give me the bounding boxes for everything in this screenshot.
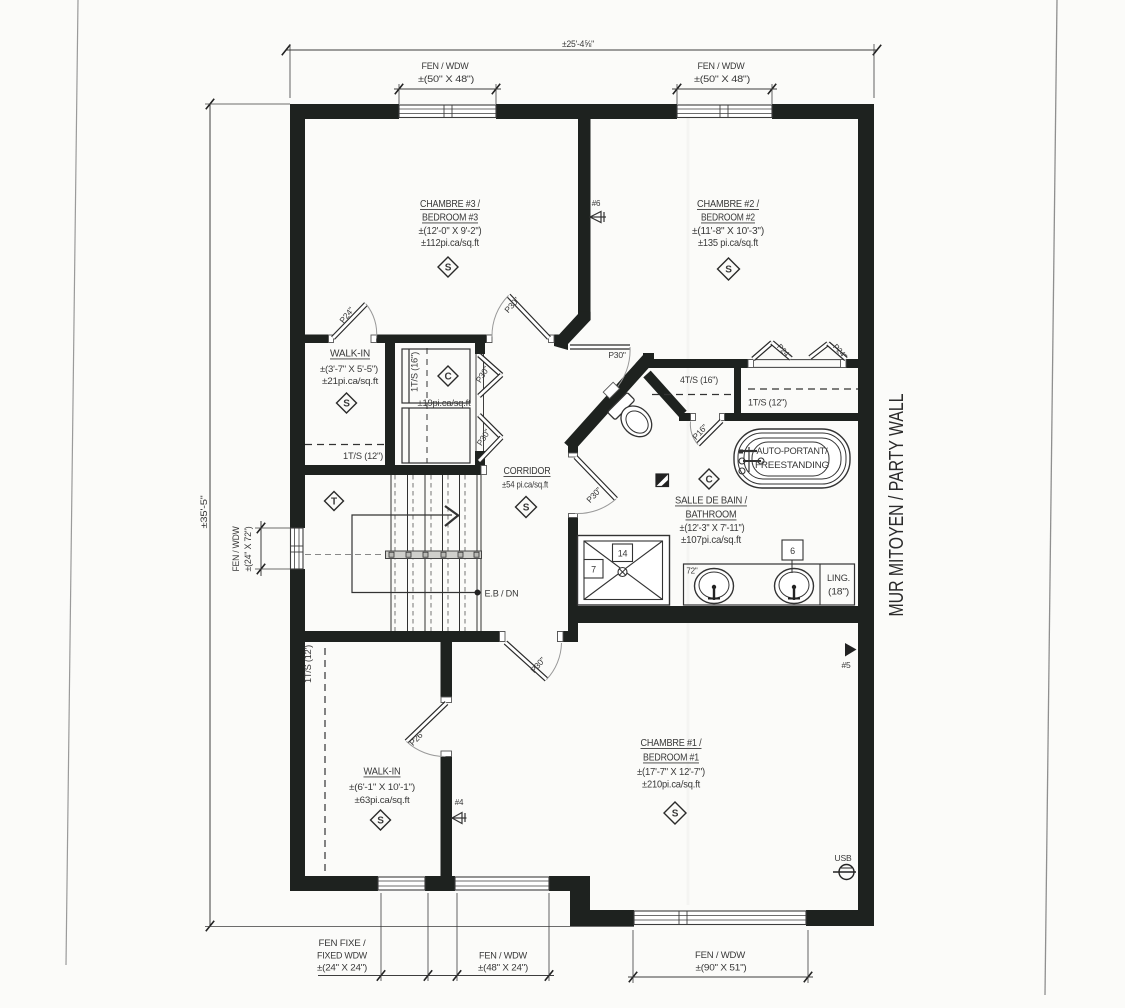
svg-text:#5: #5	[841, 660, 851, 670]
svg-text:±112pi.ca/sq.ft: ±112pi.ca/sq.ft	[421, 237, 479, 249]
svg-text:S: S	[672, 809, 679, 820]
svg-text:±(90" X 51"): ±(90" X 51")	[696, 963, 747, 973]
svg-text:±(17'-7" X 12'-7"): ±(17'-7" X 12'-7")	[637, 766, 705, 778]
svg-text:LING.: LING.	[827, 573, 850, 583]
svg-text:CHAMBRE #2 /: CHAMBRE #2 /	[697, 198, 759, 210]
svg-text:S: S	[523, 503, 530, 514]
svg-text:±(6'-1" X 10'-1"): ±(6'-1" X 10'-1")	[349, 782, 415, 793]
svg-text:±(24" X 72"): ±(24" X 72")	[243, 526, 253, 571]
svg-text:1T/S (12"): 1T/S (12")	[343, 451, 383, 462]
svg-text:14: 14	[618, 549, 628, 559]
svg-text:FEN / WDW: FEN / WDW	[231, 526, 241, 572]
svg-text:FIXED WDW: FIXED WDW	[317, 951, 368, 961]
svg-text:S: S	[377, 816, 384, 827]
svg-text:±35'-5": ±35'-5"	[199, 495, 209, 528]
svg-text:CHAMBRE #3 /: CHAMBRE #3 /	[420, 198, 480, 210]
svg-text:±(50" X 48"): ±(50" X 48")	[418, 74, 474, 84]
svg-text:6: 6	[790, 546, 795, 556]
svg-text:#4: #4	[455, 798, 464, 807]
svg-text:SALLE DE BAIN /: SALLE DE BAIN /	[675, 495, 747, 507]
svg-text:FEN FIXE /: FEN FIXE /	[319, 938, 367, 948]
svg-text:BATHROOM: BATHROOM	[686, 509, 737, 521]
svg-text:±25'-4⅝": ±25'-4⅝"	[562, 39, 594, 49]
svg-text:BEDROOM #1: BEDROOM #1	[643, 752, 699, 764]
svg-text:BEDROOM #3: BEDROOM #3	[422, 212, 478, 224]
svg-text:1T/S (12'): 1T/S (12')	[303, 645, 313, 683]
svg-text:FEN / WDW: FEN / WDW	[479, 951, 528, 961]
svg-text:BEDROOM #2: BEDROOM #2	[701, 212, 755, 224]
svg-text:±(24" X 24"): ±(24" X 24")	[317, 963, 367, 973]
svg-text:C: C	[705, 475, 712, 486]
svg-text:S: S	[445, 263, 452, 274]
svg-text:FREESTANDING: FREESTANDING	[755, 460, 829, 471]
svg-text:C: C	[444, 372, 451, 383]
svg-text:±(12'-3" X 7'-11"): ±(12'-3" X 7'-11")	[680, 522, 745, 534]
svg-text:P30": P30"	[608, 350, 626, 360]
svg-text:FEN / WDW: FEN / WDW	[695, 950, 746, 960]
svg-text:AUTO-PORTANT/: AUTO-PORTANT/	[757, 446, 829, 457]
svg-text:±54 pi.ca/sq.ft: ±54 pi.ca/sq.ft	[502, 480, 548, 491]
svg-text:±(48" X 24"): ±(48" X 24")	[478, 963, 528, 973]
svg-text:CORRIDOR: CORRIDOR	[504, 465, 552, 477]
svg-text:E.B / DN: E.B / DN	[485, 589, 519, 600]
svg-text:1T/S (16"): 1T/S (16")	[410, 352, 420, 392]
svg-text:±(12'-0" X 9'-2"): ±(12'-0" X 9'-2")	[419, 225, 482, 237]
svg-text:USB: USB	[835, 853, 853, 863]
svg-text:±135 pi.ca/sq.ft: ±135 pi.ca/sq.ft	[698, 237, 758, 249]
svg-text:T: T	[331, 497, 337, 508]
svg-text:±(11'-8" X 10'-3"): ±(11'-8" X 10'-3")	[692, 225, 764, 237]
svg-text:±(50" X 48"): ±(50" X 48")	[694, 74, 750, 84]
svg-text:72": 72"	[686, 567, 697, 576]
svg-text:WALK-IN: WALK-IN	[330, 348, 370, 360]
svg-text:WALK-IN: WALK-IN	[364, 766, 401, 778]
svg-text:FEN / WDW: FEN / WDW	[698, 61, 746, 71]
svg-text:±210pi.ca/sq.ft: ±210pi.ca/sq.ft	[642, 779, 700, 791]
svg-text:7: 7	[591, 565, 596, 575]
svg-text:1T/S (12"): 1T/S (12")	[748, 398, 787, 409]
svg-text:±21pi.ca/sq.ft: ±21pi.ca/sq.ft	[322, 376, 379, 387]
svg-text:±107pi.ca/sq.ft: ±107pi.ca/sq.ft	[681, 534, 741, 546]
svg-text:±63pi.ca/sq.ft: ±63pi.ca/sq.ft	[355, 795, 411, 806]
svg-text:FEN / WDW: FEN / WDW	[422, 61, 470, 71]
svg-text:±(3'-7" X 5'-5"): ±(3'-7" X 5'-5")	[320, 364, 378, 375]
svg-text:#6: #6	[592, 199, 601, 208]
svg-text:4T/S (16"): 4T/S (16")	[680, 375, 718, 386]
svg-text:S: S	[343, 399, 350, 410]
svg-text:(18"): (18")	[828, 587, 849, 597]
svg-text:CHAMBRE #1 /: CHAMBRE #1 /	[641, 737, 702, 749]
svg-text:MUR MITOYEN / PARTY WALL: MUR MITOYEN / PARTY WALL	[886, 394, 908, 617]
svg-text:±19pi.ca/sq.ft: ±19pi.ca/sq.ft	[418, 398, 472, 409]
svg-text:S: S	[725, 265, 732, 276]
